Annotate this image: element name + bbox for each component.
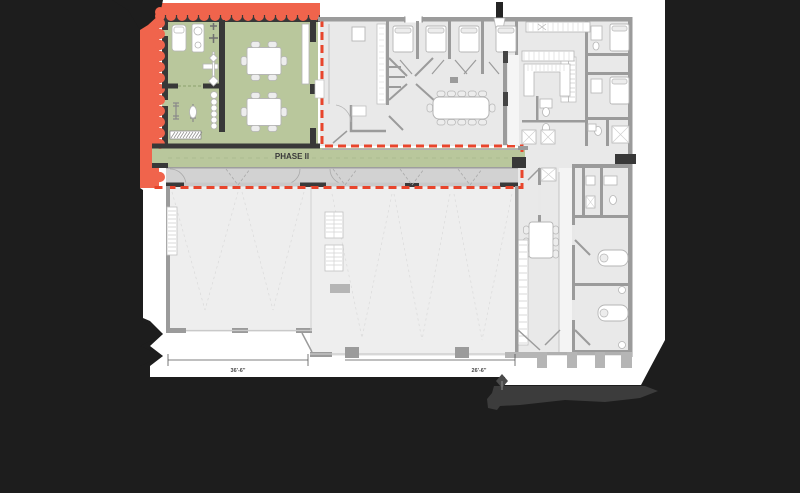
- svg-text:26'-6": 26'-6": [472, 368, 487, 374]
- svg-text:36'-6": 36'-6": [231, 368, 246, 374]
- svg-text:PHASE II: PHASE II: [275, 152, 309, 161]
